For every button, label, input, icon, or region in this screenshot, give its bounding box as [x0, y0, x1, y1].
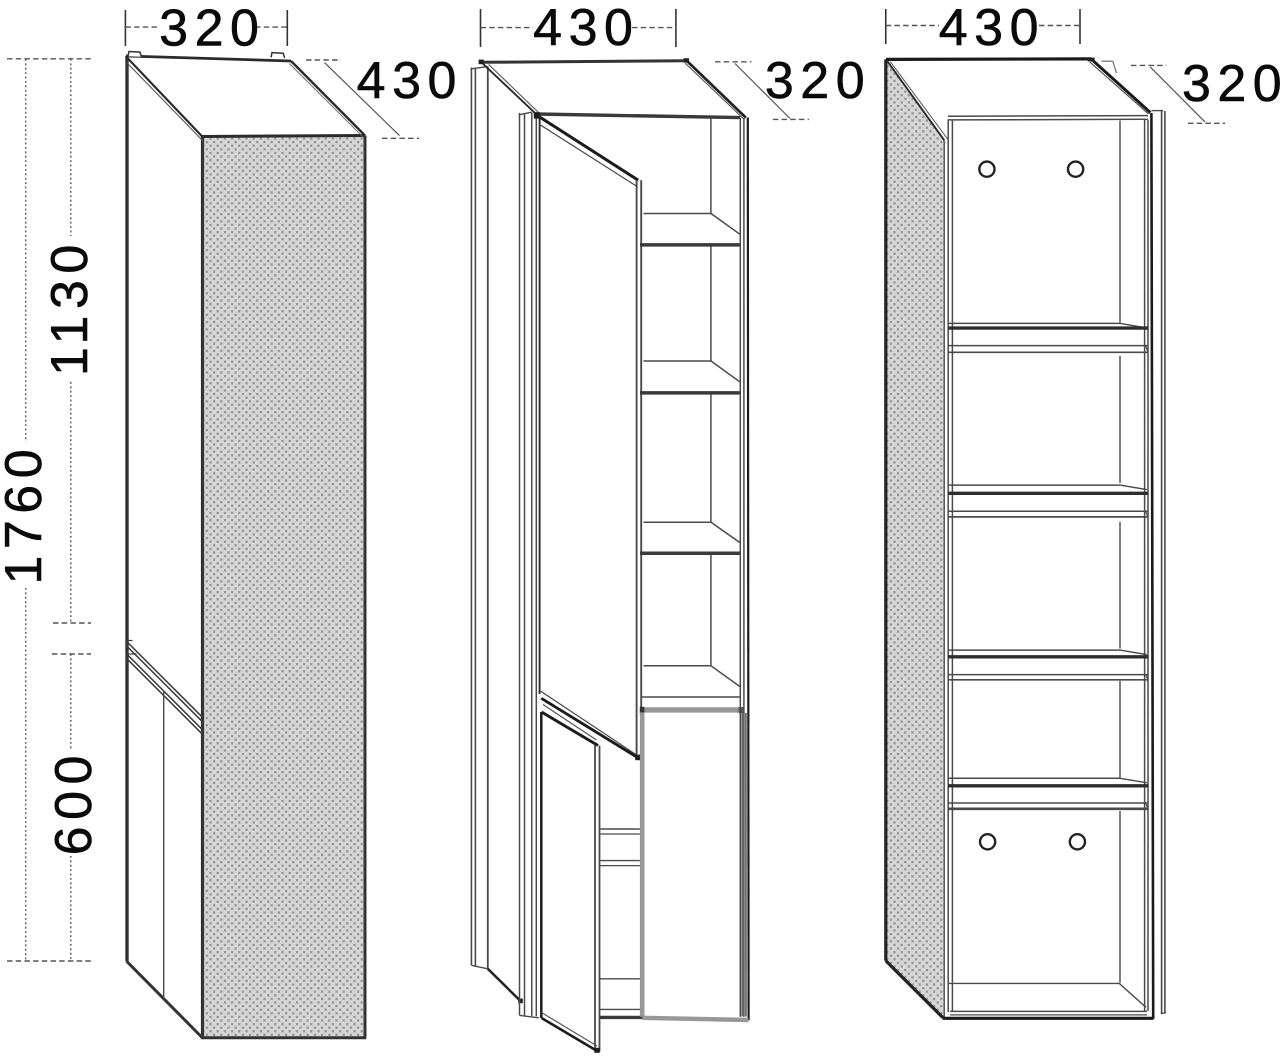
svg-text:600: 600: [45, 749, 103, 855]
svg-text:430: 430: [533, 0, 639, 57]
svg-text:1130: 1130: [41, 238, 99, 376]
svg-text:430: 430: [939, 0, 1045, 57]
svg-text:320: 320: [765, 52, 871, 110]
svg-text:320: 320: [1182, 55, 1280, 113]
svg-text:1760: 1760: [0, 443, 53, 585]
svg-text:430: 430: [357, 52, 463, 110]
svg-text:320: 320: [159, 0, 265, 57]
